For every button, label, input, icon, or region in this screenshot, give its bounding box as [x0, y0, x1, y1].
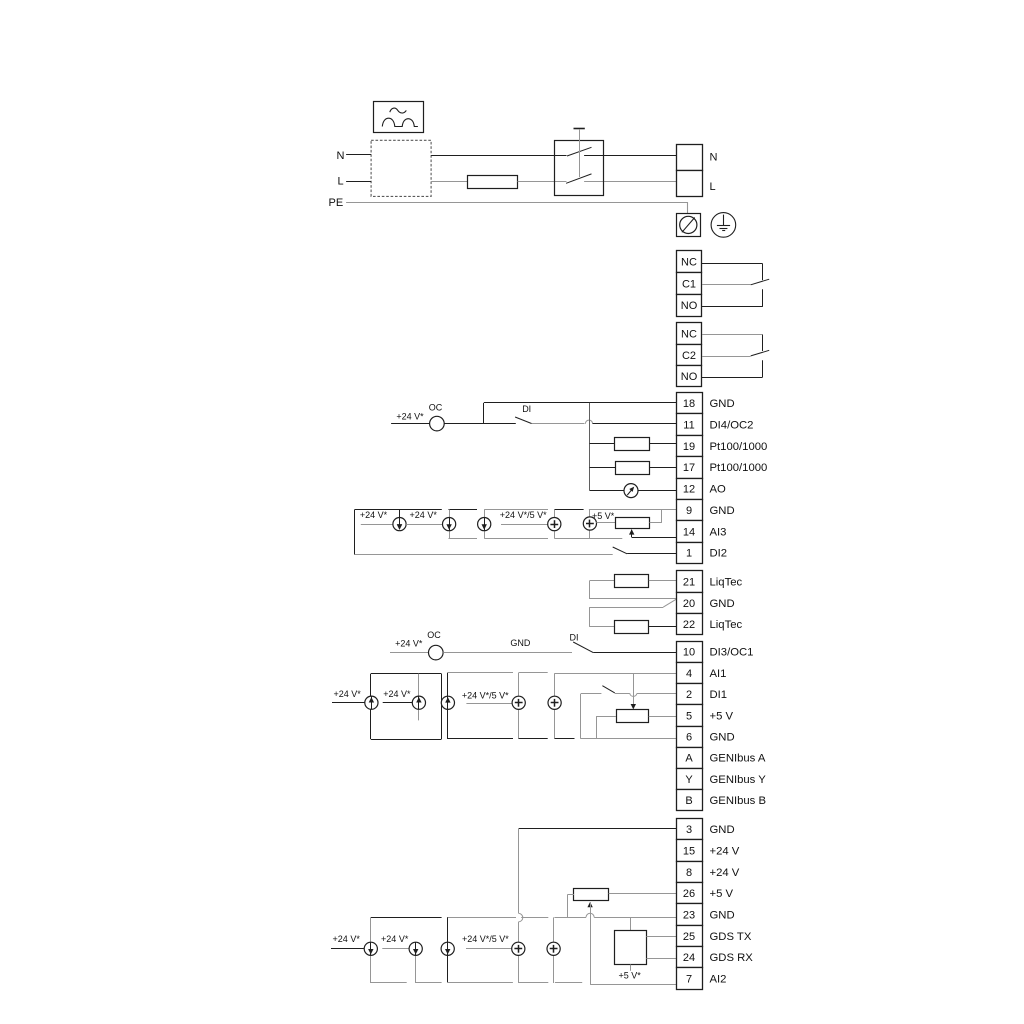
svg-text:NC: NC	[681, 328, 697, 340]
svg-text:N: N	[337, 150, 345, 162]
svg-text:OC: OC	[429, 403, 443, 413]
svg-text:GND: GND	[710, 598, 735, 610]
svg-text:DI4/OC2: DI4/OC2	[710, 420, 754, 432]
svg-text:C1: C1	[682, 278, 696, 290]
svg-text:19: 19	[683, 441, 695, 453]
svg-text:OC: OC	[427, 630, 441, 640]
svg-text:+24 V*: +24 V*	[396, 411, 424, 421]
svg-text:+24 V*: +24 V*	[360, 510, 388, 520]
svg-text:A: A	[685, 753, 693, 765]
svg-text:3: 3	[686, 824, 692, 836]
svg-text:DI: DI	[570, 633, 579, 643]
svg-text:+24 V*/5 V*: +24 V*/5 V*	[462, 690, 509, 700]
svg-text:12: 12	[683, 484, 695, 496]
svg-text:GND: GND	[710, 824, 735, 836]
svg-text:14: 14	[683, 526, 695, 538]
svg-text:17: 17	[683, 462, 695, 474]
svg-text:18: 18	[683, 398, 695, 410]
svg-text:GENIbus Y: GENIbus Y	[710, 774, 767, 786]
svg-text:25: 25	[683, 931, 695, 943]
svg-text:2: 2	[686, 689, 692, 701]
svg-text:Y: Y	[685, 774, 693, 786]
svg-text:PE: PE	[329, 197, 344, 209]
svg-text:AI1: AI1	[710, 668, 727, 680]
svg-text:9: 9	[686, 505, 692, 517]
svg-text:GDS TX: GDS TX	[710, 931, 752, 943]
svg-text:NO: NO	[681, 371, 698, 383]
svg-text:+24 V*: +24 V*	[395, 638, 423, 648]
svg-text:GND: GND	[710, 732, 735, 744]
svg-text:11: 11	[683, 420, 694, 432]
svg-text:+5 V: +5 V	[710, 888, 734, 900]
svg-text:LiqTec: LiqTec	[710, 577, 743, 589]
svg-text:GND: GND	[510, 638, 531, 648]
svg-text:6: 6	[686, 732, 692, 744]
svg-text:8: 8	[686, 867, 692, 879]
svg-text:C2: C2	[682, 350, 696, 362]
svg-text:L: L	[710, 181, 716, 193]
svg-text:Pt100/1000: Pt100/1000	[710, 462, 768, 474]
svg-text:+24 V: +24 V	[710, 845, 740, 857]
svg-text:NC: NC	[681, 257, 697, 269]
svg-text:GENIbus A: GENIbus A	[710, 753, 766, 765]
svg-text:15: 15	[683, 845, 695, 857]
svg-text:21: 21	[683, 577, 695, 589]
svg-text:DI2: DI2	[710, 548, 728, 560]
svg-text:GENIbus B: GENIbus B	[710, 795, 767, 807]
svg-text:N: N	[710, 151, 718, 163]
svg-text:1: 1	[686, 548, 692, 560]
svg-text:20: 20	[683, 598, 695, 610]
svg-text:22: 22	[683, 619, 695, 631]
svg-text:NO: NO	[681, 300, 698, 312]
svg-text:GDS RX: GDS RX	[710, 952, 754, 964]
svg-text:+24 V*: +24 V*	[381, 934, 409, 944]
svg-text:+24 V: +24 V	[710, 867, 740, 879]
svg-text:DI: DI	[522, 404, 531, 414]
svg-text:B: B	[685, 795, 692, 807]
svg-text:L: L	[338, 176, 344, 188]
svg-text:+5 V*: +5 V*	[592, 511, 615, 521]
svg-text:7: 7	[686, 974, 692, 986]
svg-text:26: 26	[683, 888, 695, 900]
svg-text:+24 V*/5 V*: +24 V*/5 V*	[500, 510, 547, 520]
svg-text:AI3: AI3	[710, 526, 727, 538]
svg-text:LiqTec: LiqTec	[710, 619, 743, 631]
svg-text:+24 V*: +24 V*	[333, 689, 361, 699]
svg-text:+24 V*: +24 V*	[410, 510, 438, 520]
svg-text:Pt100/1000: Pt100/1000	[710, 441, 768, 453]
svg-text:+5 V: +5 V	[710, 710, 734, 722]
svg-text:AO: AO	[710, 484, 727, 496]
svg-text:5: 5	[686, 710, 692, 722]
svg-text:DI3/OC1: DI3/OC1	[710, 647, 754, 659]
svg-text:GND: GND	[710, 398, 735, 410]
svg-text:10: 10	[683, 647, 695, 659]
svg-text:24: 24	[683, 952, 695, 964]
svg-text:GND: GND	[710, 505, 735, 517]
svg-text:4: 4	[686, 668, 692, 680]
svg-text:+24 V*: +24 V*	[383, 689, 411, 699]
svg-text:GND: GND	[710, 909, 735, 921]
svg-text:AI2: AI2	[710, 974, 727, 986]
svg-text:DI1: DI1	[710, 689, 728, 701]
svg-text:+5 V*: +5 V*	[618, 971, 641, 981]
svg-text:23: 23	[683, 909, 695, 921]
svg-text:+24 V*: +24 V*	[333, 934, 361, 944]
svg-text:+24 V*/5 V*: +24 V*/5 V*	[462, 934, 509, 944]
